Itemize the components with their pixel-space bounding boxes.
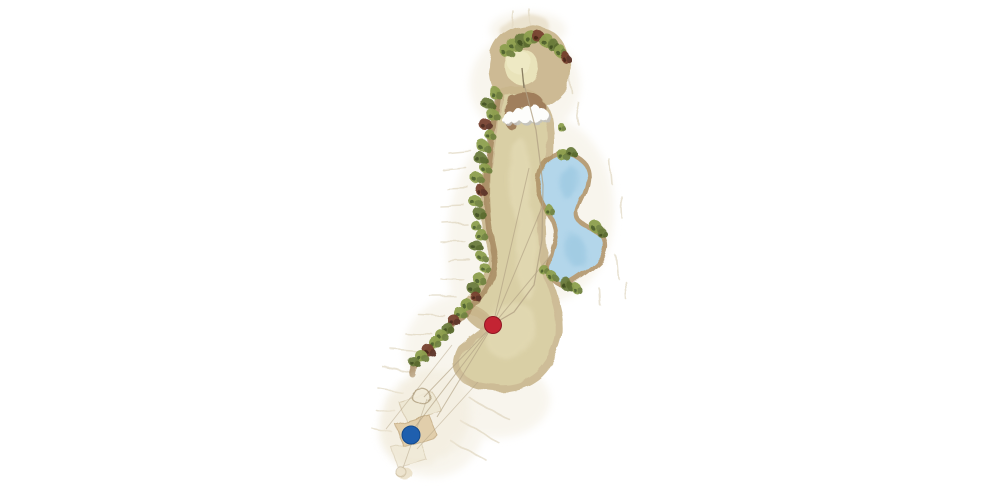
golf-hole-map (0, 0, 1000, 500)
landing-marker-red[interactable] (485, 317, 502, 334)
hole-illustration (0, 0, 1000, 500)
tree-icon (560, 52, 572, 62)
tee-mound (396, 467, 412, 479)
tee-marker-blue[interactable] (402, 426, 420, 444)
